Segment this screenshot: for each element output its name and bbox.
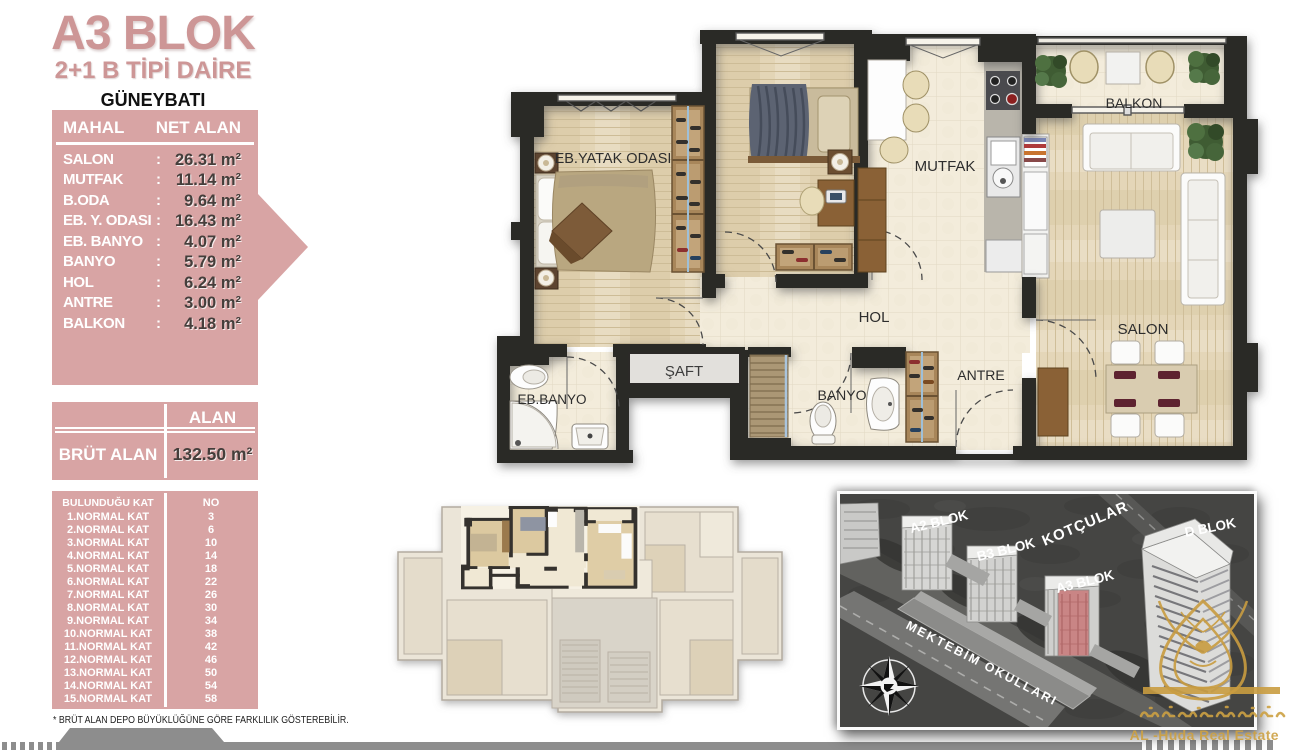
svg-text:AL -Huda Real Estate: AL -Huda Real Estate xyxy=(1130,727,1279,743)
